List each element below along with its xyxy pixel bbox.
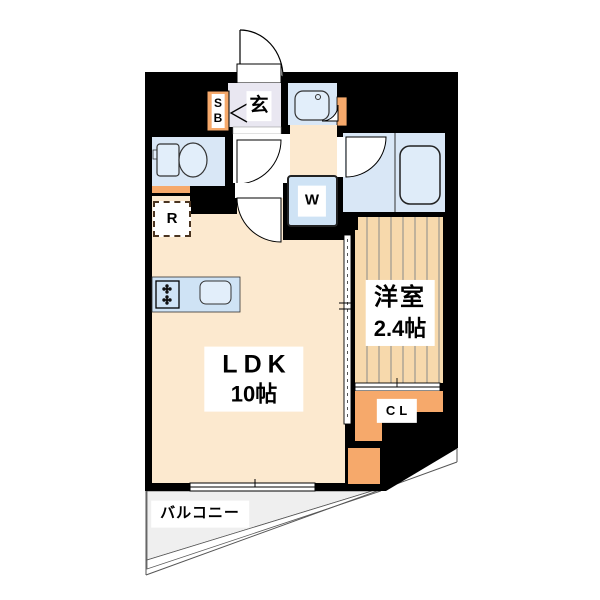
wall-patch: [190, 196, 237, 214]
entrance-step: [233, 127, 281, 134]
balcony-label: バルコニー: [151, 501, 249, 528]
kitchen-sink-icon: [200, 281, 231, 304]
western-room-label: 洋室 2.4帖: [366, 280, 435, 346]
washing-machine-label: W: [298, 186, 326, 217]
shoe-box-label: S B: [212, 94, 225, 128]
pillar-alcove: [348, 448, 380, 484]
washbasin-icon: [295, 91, 329, 120]
floor-plan-drawing: [0, 0, 600, 600]
closet-label: CL: [377, 399, 417, 423]
bathroom-door-opening: [337, 137, 345, 177]
kitchen-counter: [152, 277, 240, 312]
toilet-counter-strip: [152, 186, 190, 193]
ldk-door-opening: [235, 183, 283, 198]
entrance-label: 玄: [246, 91, 271, 121]
bathtub-icon: [400, 146, 440, 204]
floor-plan: LDK 10帖 洋室 2.4帖 CL W R S B 玄 バルコニー: [0, 0, 600, 600]
entrance-door-icon: [237, 30, 283, 83]
refrigerator-label: R: [153, 201, 191, 237]
ldk-label: LDK 10帖: [204, 347, 303, 412]
